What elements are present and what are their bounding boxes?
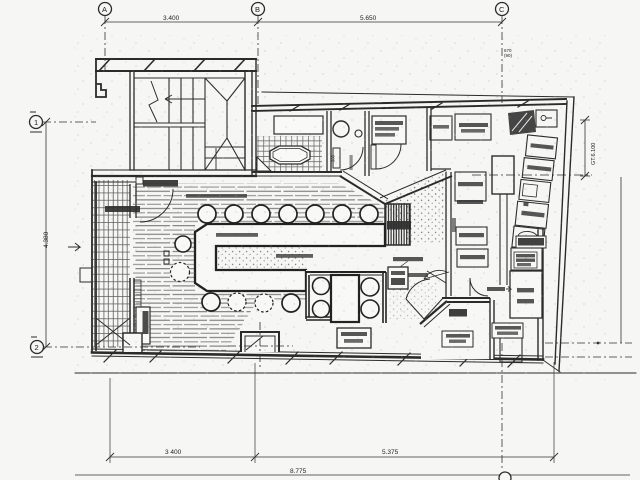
svg-text:3.400: 3.400 — [163, 15, 180, 22]
svg-text:GT.6.100: GT.6.100 — [591, 143, 597, 165]
svg-text:300: 300 — [331, 154, 336, 162]
svg-text:5.650: 5.650 — [360, 15, 377, 22]
svg-text:3 400: 3 400 — [165, 449, 182, 456]
svg-text:5.375: 5.375 — [382, 449, 399, 456]
svg-text:C: C — [499, 5, 505, 14]
svg-text:(90): (90) — [504, 53, 513, 58]
svg-text:8.775: 8.775 — [290, 468, 307, 475]
svg-text:4.380: 4.380 — [43, 231, 50, 248]
svg-text:1: 1 — [34, 118, 38, 127]
svg-text:2: 2 — [35, 343, 39, 352]
svg-text:B: B — [255, 5, 260, 14]
svg-text:A: A — [102, 5, 107, 14]
